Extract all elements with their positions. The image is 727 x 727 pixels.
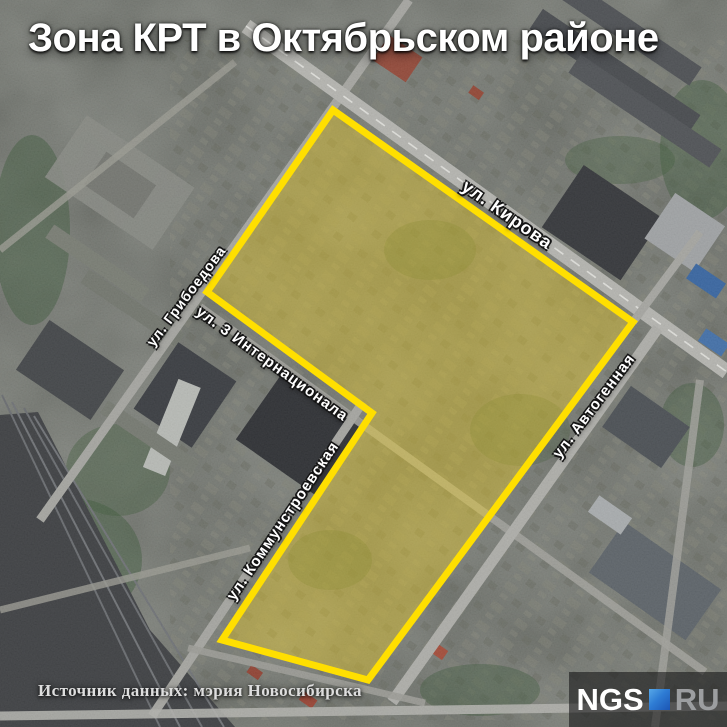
ngs-logo-domain: RU <box>675 682 720 718</box>
ngs-logo-square-icon <box>649 689 670 710</box>
ngs-logo-text: NGS <box>577 682 644 718</box>
ngs-logo[interactable]: NGS RU <box>569 672 727 727</box>
page-title: Зона КРТ в Октябрьском районе <box>28 16 659 61</box>
data-source-caption: Источник данных: мэрия Новосибирска <box>38 681 362 701</box>
map-canvas: Зона КРТ в Октябрьском районе ул. Кирова… <box>0 0 727 727</box>
